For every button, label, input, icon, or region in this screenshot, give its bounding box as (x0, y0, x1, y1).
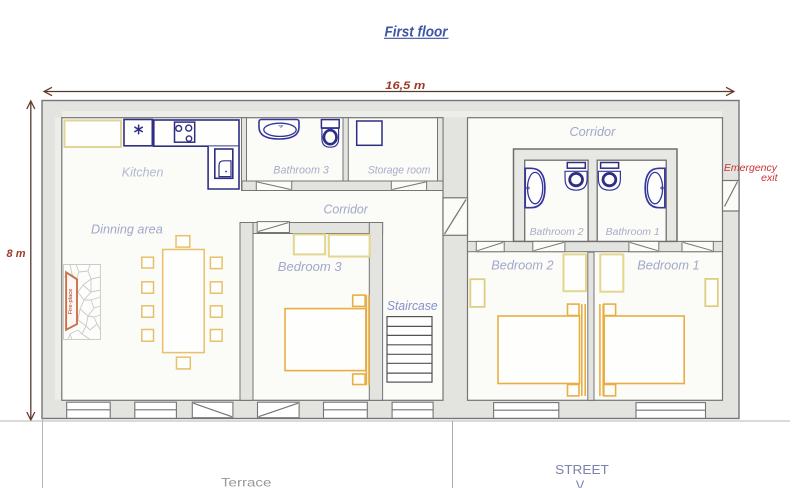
svg-text:Kitchen: Kitchen (122, 165, 164, 180)
svg-text:exit: exit (761, 172, 778, 184)
svg-text:V: V (576, 479, 585, 488)
svg-text:Staircase: Staircase (387, 299, 438, 313)
svg-text:Corridor: Corridor (324, 202, 369, 217)
svg-text:Storage room: Storage room (368, 165, 431, 177)
svg-text:Bathroom 2: Bathroom 2 (530, 227, 584, 238)
svg-text:Bathroom 3: Bathroom 3 (273, 165, 329, 177)
svg-text:Bathroom 1: Bathroom 1 (606, 227, 660, 238)
svg-text:Terrace: Terrace (221, 475, 272, 488)
svg-text:Dinning area: Dinning area (91, 222, 163, 237)
svg-text:Fire-place: Fire-place (68, 289, 74, 315)
svg-text:16,5 m: 16,5 m (385, 80, 425, 92)
svg-text:Bedroom 3: Bedroom 3 (278, 259, 343, 274)
svg-text:8 m: 8 m (7, 248, 26, 260)
svg-text:Bedroom 1: Bedroom 1 (637, 258, 699, 273)
svg-text:STREET: STREET (555, 463, 609, 477)
svg-text:Bedroom 2: Bedroom 2 (491, 258, 554, 273)
svg-text:Corridor: Corridor (569, 124, 616, 139)
